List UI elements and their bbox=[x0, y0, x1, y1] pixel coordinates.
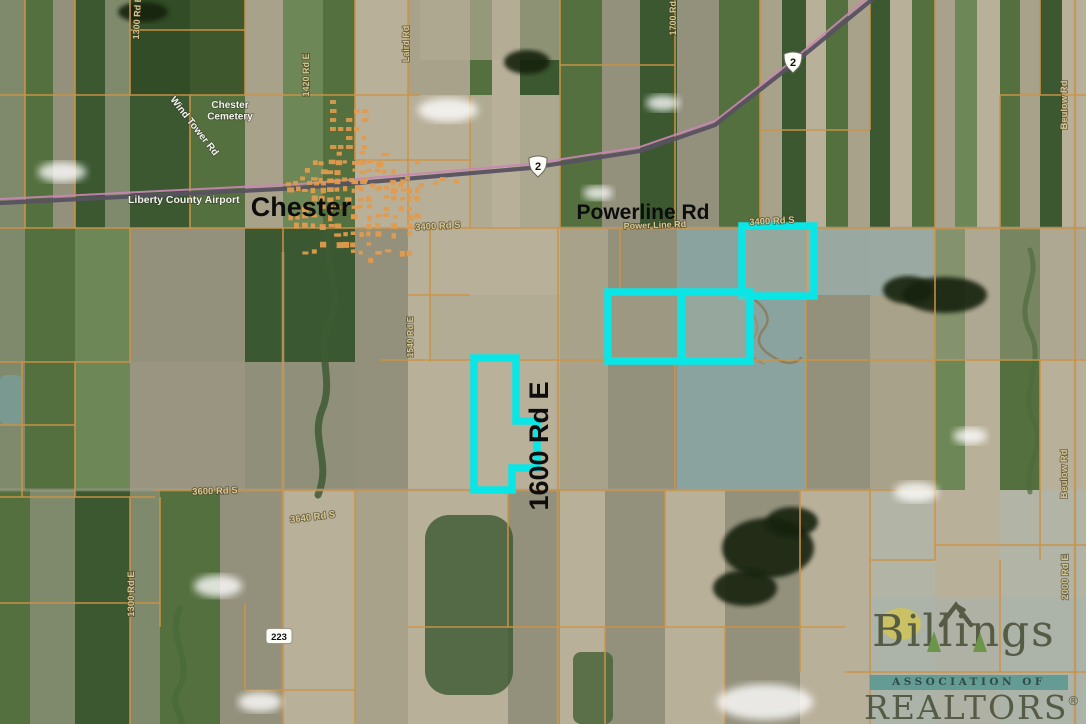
parcel-north bbox=[742, 226, 814, 296]
map-label-rd-1420: 1420 Rd E bbox=[301, 53, 311, 96]
map-label-rd-1540: 1540 Rd E bbox=[405, 316, 415, 357]
shield-mt-223: 223 bbox=[266, 629, 292, 644]
map-label-liberty-county-airport: Liberty County Airport bbox=[128, 194, 240, 206]
logo-realtors-text: REALTORS® bbox=[864, 688, 1080, 724]
map-label-chester-town: Chester bbox=[251, 192, 352, 222]
tree-icon bbox=[973, 632, 987, 652]
svg-text:223: 223 bbox=[271, 632, 287, 643]
parcel-middle-west bbox=[608, 292, 682, 361]
parcel-middle-east bbox=[682, 292, 750, 361]
map-label-rd-2000: 2000 Rd E bbox=[1060, 554, 1071, 599]
map-label-rd-3600: 3600 Rd S bbox=[192, 485, 238, 498]
map-label-rd-1300-south: 1300 Rd E bbox=[126, 571, 137, 616]
svg-text:2: 2 bbox=[790, 57, 796, 69]
house-roof-icon bbox=[941, 605, 971, 625]
map-label-chester-cemetery: ChesterCemetery bbox=[207, 100, 253, 123]
map-label-rd-1600-title: 1600 Rd E bbox=[524, 381, 554, 510]
map-label-beulow-rd-south: Beulow Rd bbox=[1059, 449, 1070, 498]
tree-icon bbox=[927, 631, 941, 652]
registered-mark: ® bbox=[1069, 693, 1081, 708]
map-label-rd-1700: 1700 Rd E bbox=[668, 0, 678, 36]
map-label-beulow-rd-north: Beulow Rd bbox=[1059, 80, 1070, 129]
svg-text:2: 2 bbox=[535, 161, 541, 173]
map-label-laird-rd: Laird Rd bbox=[401, 26, 411, 63]
map-canvas: ChesterCemeteryWind Tower RdLiberty Coun… bbox=[0, 0, 1086, 724]
billings-realtors-watermark: Billings ASSOCIATION OF REALTORS® bbox=[856, 594, 1086, 724]
